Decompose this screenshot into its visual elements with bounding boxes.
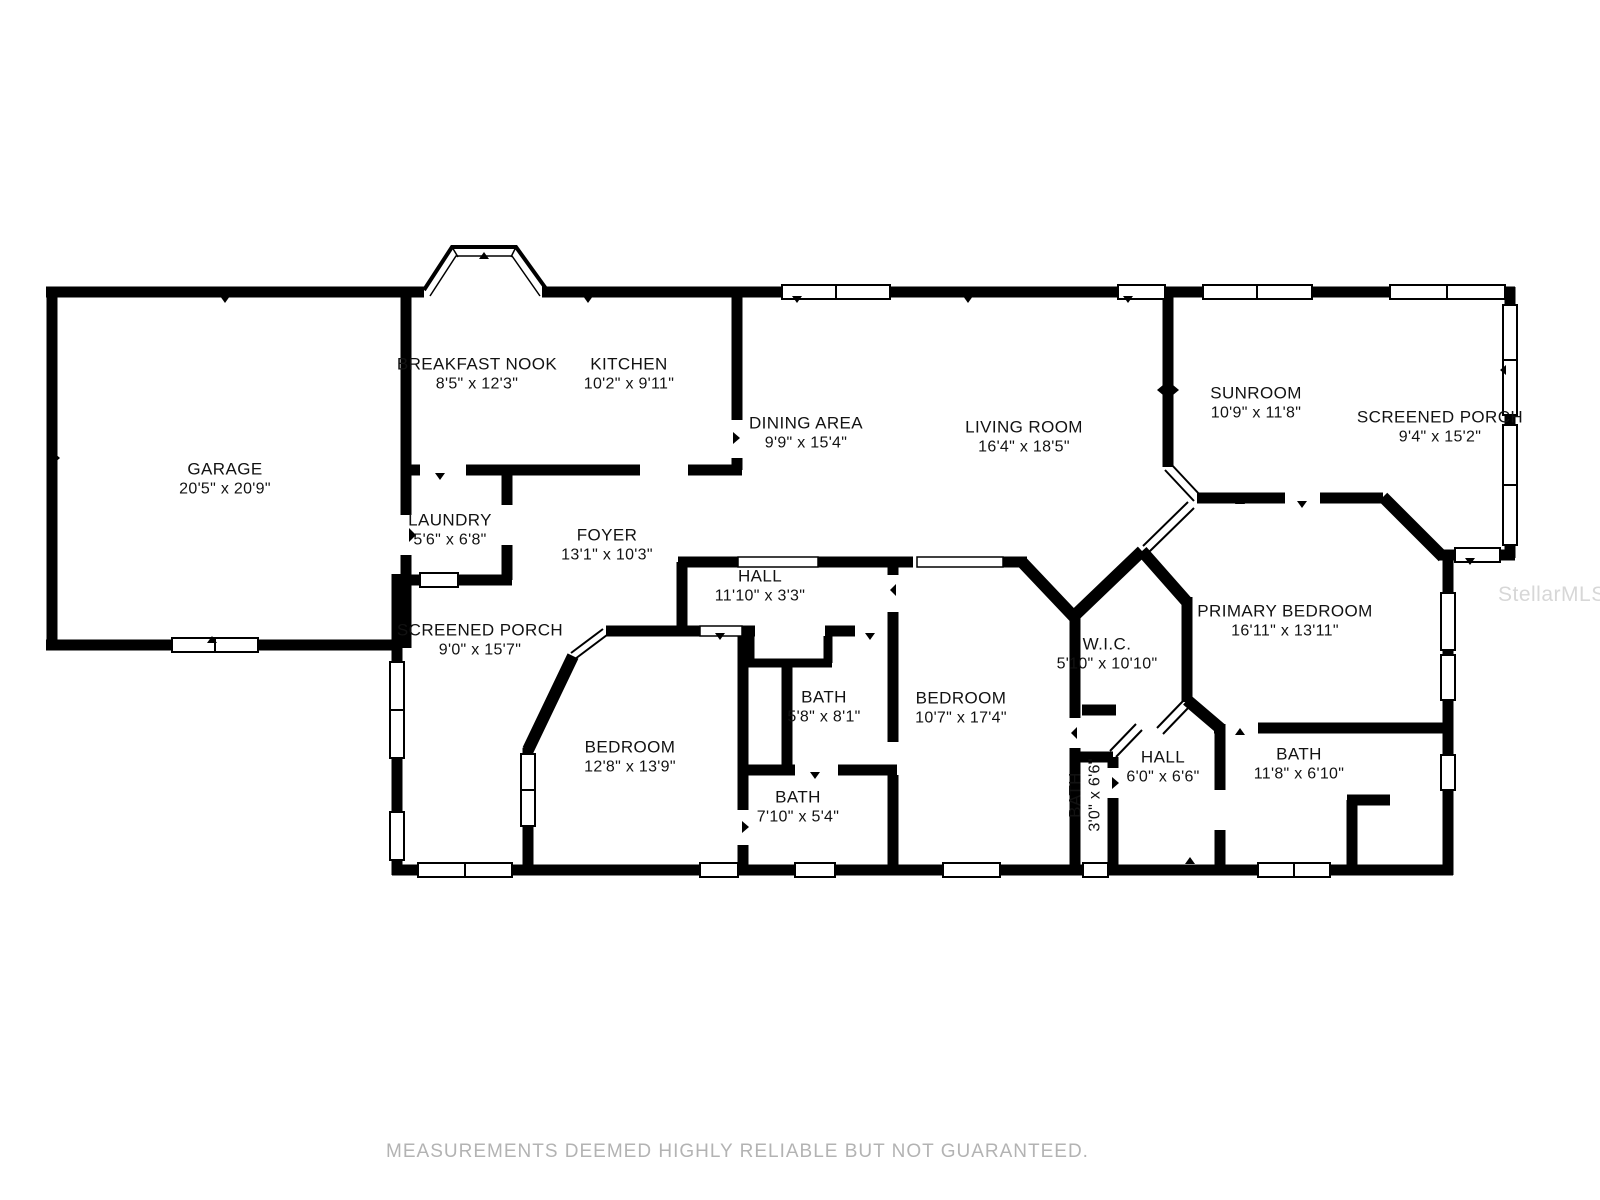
room-dims: 9'4" x 15'2" — [1357, 428, 1523, 448]
room-name: BREAKFAST NOOK — [397, 353, 557, 374]
room-dims: 13'1" x 10'3" — [561, 546, 653, 566]
room-dims: 5'8" x 8'1" — [787, 708, 860, 728]
room-name: SUNROOM — [1210, 382, 1302, 403]
room-dims: 10'2" x 9'11" — [584, 375, 674, 395]
room-dims: 3'0" x 6'6" — [1086, 758, 1106, 831]
room-name: W.I.C. — [1057, 633, 1158, 654]
room-name: LIVING ROOM — [965, 416, 1083, 437]
room-label-screened-porch-left: SCREENED PORCH 9'0" x 15'7" — [397, 619, 563, 660]
room-name: PRIMARY BEDROOM — [1197, 600, 1372, 621]
room-name: HALL — [1126, 746, 1199, 767]
room-dims: 7'10" x 5'4" — [757, 808, 839, 828]
room-dims: 20'5" x 20'9" — [179, 480, 271, 500]
floorplan-page: GARAGE 20'5" x 20'9" BREAKFAST NOOK 8'5"… — [0, 0, 1600, 1200]
room-name: BEDROOM — [584, 736, 676, 757]
room-name: BATH — [757, 786, 839, 807]
windows — [172, 285, 1517, 877]
room-dims: 9'0" x 15'7" — [397, 641, 563, 661]
room-name: FOYER — [561, 524, 653, 545]
room-label-bedroom-128: BEDROOM 12'8" x 13'9" — [584, 736, 676, 777]
room-name: SCREENED PORCH — [397, 619, 563, 640]
room-dims: 12'8" x 13'9" — [584, 758, 676, 778]
room-label-bath-58: BATH 5'8" x 8'1" — [787, 686, 860, 727]
room-label-living-room: LIVING ROOM 16'4" x 18'5" — [965, 416, 1083, 457]
room-dims: 11'10" x 3'3" — [715, 587, 805, 607]
room-label-wic: W.I.C. 5'10" x 10'10" — [1057, 633, 1158, 674]
room-name: BATH — [1064, 758, 1085, 831]
room-name: BATH — [787, 686, 860, 707]
closet-walls — [746, 632, 832, 663]
room-dims: 10'9" x 11'8" — [1210, 404, 1302, 424]
disclaimer-text: MEASUREMENTS DEEMED HIGHLY RELIABLE BUT … — [0, 1141, 1475, 1163]
room-name: KITCHEN — [584, 353, 674, 374]
room-label-sunroom: SUNROOM 10'9" x 11'8" — [1210, 382, 1302, 423]
room-name: BATH — [1254, 743, 1344, 764]
room-name: BEDROOM — [915, 687, 1007, 708]
room-name: DINING AREA — [749, 412, 863, 433]
room-name: LAUNDRY — [408, 509, 492, 530]
room-label-kitchen: KITCHEN 10'2" x 9'11" — [584, 353, 674, 394]
room-label-bath-710: BATH 7'10" x 5'4" — [757, 786, 839, 827]
room-dims: 10'7" x 17'4" — [915, 709, 1007, 729]
room-label-foyer: FOYER 13'1" x 10'3" — [561, 524, 653, 565]
stellar-mls-watermark: StellarMLS — [1498, 583, 1600, 607]
room-dims: 9'9" x 15'4" — [749, 434, 863, 454]
room-dims: 8'5" x 12'3" — [397, 375, 557, 395]
room-dims: 11'8" x 6'10" — [1254, 765, 1344, 785]
room-label-bath-118: BATH 11'8" x 6'10" — [1254, 743, 1344, 784]
room-label-hall-upper: HALL 11'10" x 3'3" — [715, 565, 805, 606]
room-dims: 16'4" x 18'5" — [965, 438, 1083, 458]
room-name: HALL — [715, 565, 805, 586]
room-name: SCREENED PORCH — [1357, 406, 1523, 427]
room-label-primary-bedroom: PRIMARY BEDROOM 16'11" x 13'11" — [1197, 600, 1372, 641]
room-label-laundry: LAUNDRY 5'6" x 6'8" — [408, 509, 492, 550]
room-dims: 6'0" x 6'6" — [1126, 768, 1199, 788]
room-name: GARAGE — [179, 458, 271, 479]
room-label-dining-area: DINING AREA 9'9" x 15'4" — [749, 412, 863, 453]
room-dims: 5'6" x 6'8" — [408, 531, 492, 551]
room-dims: 5'10" x 10'10" — [1057, 655, 1158, 675]
room-label-hall-lower: HALL 6'0" x 6'6" — [1126, 746, 1199, 787]
room-dims: 16'11" x 13'11" — [1197, 622, 1372, 642]
room-label-garage: GARAGE 20'5" x 20'9" — [179, 458, 271, 499]
room-label-breakfast-nook: BREAKFAST NOOK 8'5" x 12'3" — [397, 353, 557, 394]
room-label-bath-30: BATH 3'0" x 6'6" — [1064, 758, 1105, 831]
room-label-screened-porch-right: SCREENED PORCH 9'4" x 15'2" — [1357, 406, 1523, 447]
room-label-bedroom-107: BEDROOM 10'7" x 17'4" — [915, 687, 1007, 728]
